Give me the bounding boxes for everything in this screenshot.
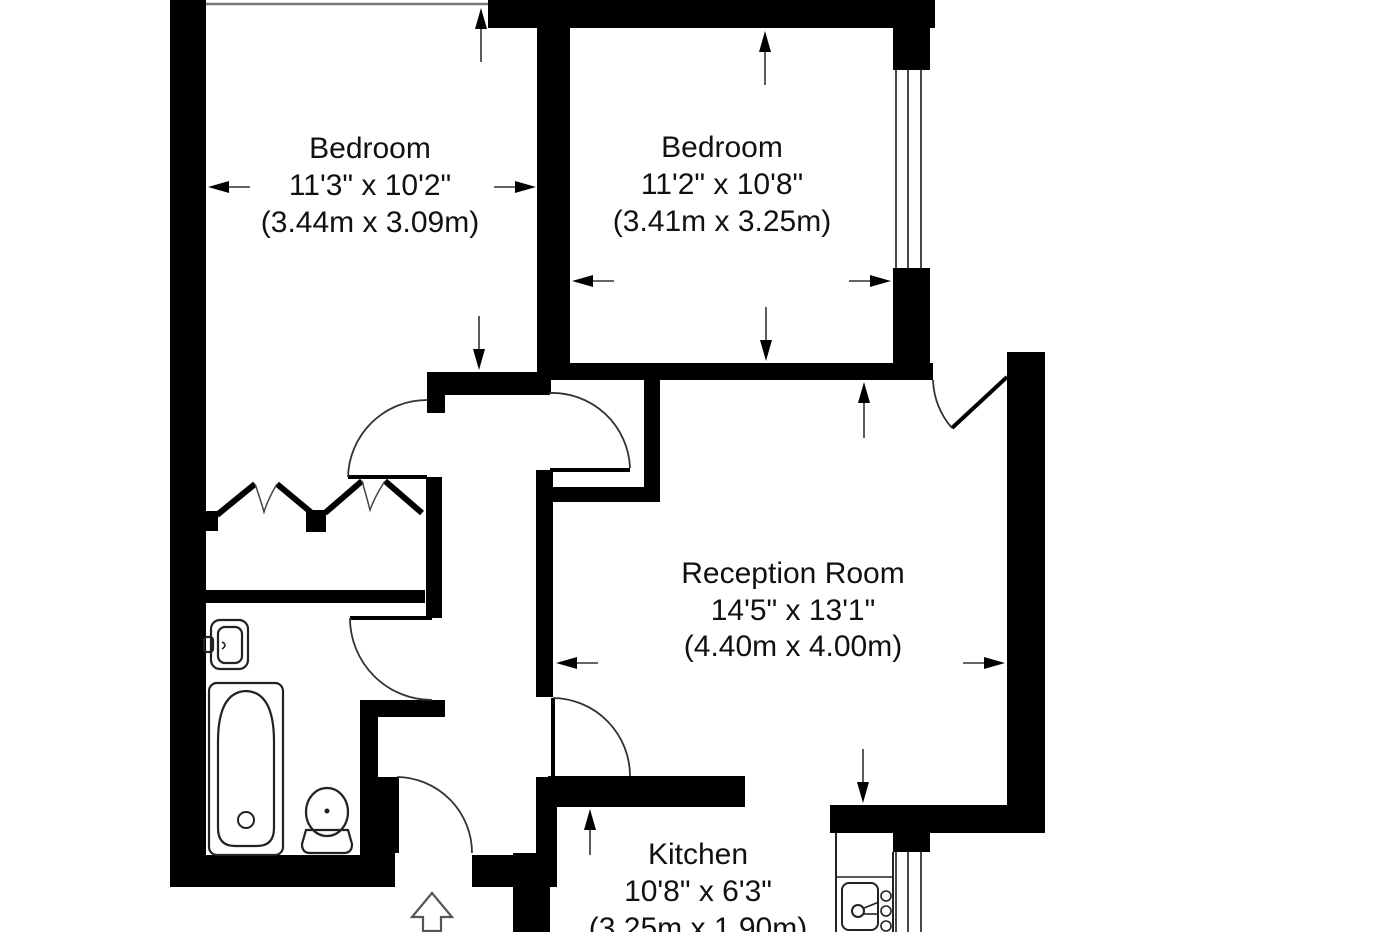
kitchen-faucet (852, 905, 864, 917)
dim-arrow-bedroom1-right (494, 181, 536, 193)
floorplan-drawing: Bedroom 11'3" x 10'2" (3.44m x 3.09m) Be… (0, 0, 1400, 932)
door-swing-arc (933, 380, 952, 428)
toilet-flush (325, 809, 330, 814)
window-kitchen-right (893, 852, 930, 932)
wall-bedroom2-right-upper (893, 0, 930, 70)
wall-kitchen-right-step (893, 833, 930, 852)
room-label-reception: Reception Room 14'5" x 13'1" (4.40m x 4.… (681, 557, 904, 663)
kitchen-fixtures (836, 833, 893, 932)
wall-bathroom-top (205, 590, 425, 603)
bifold-swing-arc (255, 484, 277, 512)
room-label-kitchen: Kitchen 10'8" x 6'3" (3.25m x 1.90m) (589, 838, 807, 932)
room-dimensions-metric: (3.25m x 1.90m) (589, 912, 807, 932)
bathtub-inner (218, 691, 274, 846)
bifold-panel (277, 484, 313, 514)
window-bedroom2-right (893, 70, 930, 268)
bifold-panel (385, 481, 422, 513)
sink-knob (881, 921, 891, 931)
dim-arrow-bedroom1-left (208, 181, 250, 193)
kitchen-sink-counter (836, 833, 893, 932)
window-bedroom1-top (206, 0, 488, 28)
wall-bathroom-right-vert (360, 700, 378, 857)
room-dimensions-imperial: 11'3" x 10'2" (289, 169, 451, 202)
room-name: Kitchen (648, 838, 748, 871)
window-opening (893, 70, 930, 268)
wall-bedroom1-bottom (427, 372, 550, 395)
bifold-panel (217, 484, 255, 515)
sink-knob (881, 891, 891, 901)
door-swing-arc (553, 698, 630, 776)
wall-bottom-bathroom (170, 855, 392, 887)
wall-bedroom-divider (537, 0, 570, 380)
door-swing-arc (549, 393, 630, 468)
bifold-panel (325, 481, 362, 513)
room-label-bedroom-2: Bedroom 11'2" x 10'8" (3.41m x 3.25m) (613, 131, 831, 238)
door-entrance (397, 777, 472, 853)
wall-bedroom2-bottom (537, 363, 933, 380)
room-label-bedroom-1: Bedroom 11'3" x 10'2" (3.44m x 3.09m) (261, 132, 479, 239)
dim-arrow-bedroom2-right (849, 275, 891, 287)
wall-reception-bottom (830, 805, 1045, 833)
room-dimensions-metric: (3.41m x 3.25m) (613, 205, 831, 238)
window-opening (893, 852, 930, 932)
wall-entrance-jamb (378, 777, 395, 887)
bathroom-sink (204, 620, 248, 669)
toilet-tank (302, 830, 352, 853)
bifold-swing-arc (362, 481, 385, 510)
door-leaf (952, 377, 1007, 428)
sink-knob (881, 906, 891, 916)
faucet-arm (864, 902, 879, 908)
bathtub-outline (209, 683, 283, 855)
wall-reception-alcove-side (644, 380, 660, 502)
bathtub-drain (238, 812, 254, 828)
bathtub (209, 683, 283, 855)
room-name: Bedroom (309, 132, 431, 165)
door-bathroom (350, 618, 432, 700)
door-swing-arc (350, 618, 432, 700)
wardrobe-bifold-doors (217, 481, 422, 515)
room-dimensions-imperial: 10'8" x 6'3" (624, 875, 772, 908)
door-swing-arc (348, 400, 427, 477)
room-name: Reception Room (681, 557, 904, 590)
wall-left-outer (170, 0, 206, 887)
dim-arrow-bedroom1-down (473, 316, 485, 370)
door-hall-to-reception (549, 393, 630, 470)
dim-arrow-bedroom2-left (572, 275, 614, 287)
wall-bedroom2-right-lower (893, 268, 930, 380)
dim-arrow-reception-left (556, 657, 598, 669)
dim-arrow-reception-down (857, 749, 869, 803)
wall-bathroom-door-stub (426, 477, 442, 618)
wall-reception-alcove-bottom (545, 487, 660, 502)
wall-bottom-entrance-right (472, 855, 517, 887)
sink-basin (218, 627, 242, 663)
wall-closet-left-stub (205, 511, 218, 531)
sink-spout (222, 642, 225, 649)
dim-arrow-reception-up (858, 382, 870, 438)
dim-arrow-bedroom2-up (759, 31, 771, 85)
room-dimensions-metric: (3.44m x 3.09m) (261, 206, 479, 239)
door-bedroom2-to-reception (933, 377, 1007, 428)
wall-kitchen-top (548, 776, 745, 807)
entrance-arrow-icon (412, 893, 452, 931)
wall-hall-reception (536, 470, 553, 697)
dim-arrow-bedroom2-down (760, 307, 772, 361)
door-hall-to-kitchen (553, 698, 630, 776)
wall-reception-right (1007, 352, 1045, 833)
wall-top-left-corner (170, 0, 210, 28)
door-bedroom1 (348, 400, 427, 477)
wall-bedroom1-bottom-left-nub (427, 372, 445, 413)
kitchen-sink-basin (842, 883, 878, 930)
floorplan-page: Bedroom 11'3" x 10'2" (3.44m x 3.09m) Be… (0, 0, 1400, 932)
toilet (302, 788, 352, 853)
wall-kitchen-left-lower (513, 853, 550, 932)
bathroom-fixtures (204, 620, 352, 855)
room-name: Bedroom (661, 131, 783, 164)
room-dimensions-imperial: 14'5" x 13'1" (711, 594, 876, 627)
room-dimensions-metric: (4.40m x 4.00m) (684, 630, 902, 663)
dim-arrow-reception-right (963, 657, 1005, 669)
dim-arrow-kitchen-up (584, 809, 596, 855)
room-dimensions-imperial: 11'2" x 10'8" (641, 168, 803, 201)
door-swing-arc (397, 777, 472, 853)
